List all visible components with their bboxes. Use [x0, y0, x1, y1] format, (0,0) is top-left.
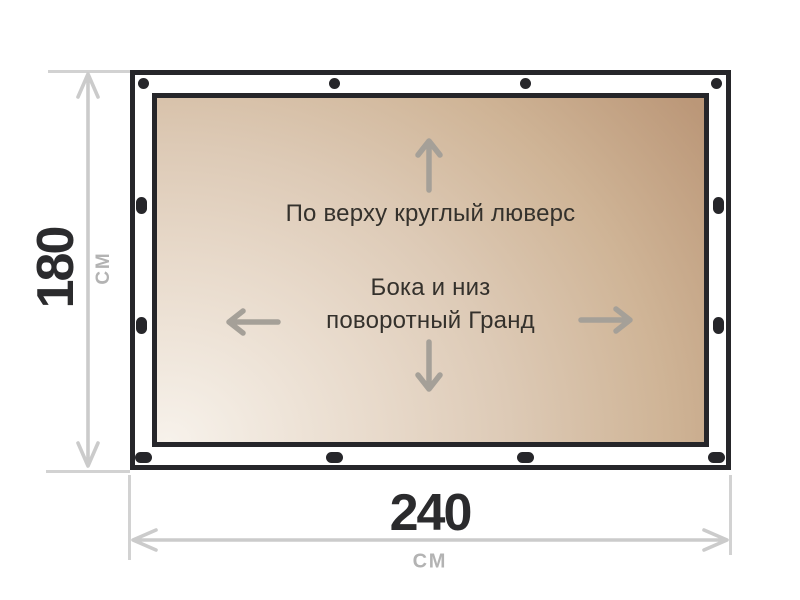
- grommet-swivel-icon: [135, 452, 152, 463]
- banner-size-diagram: По верху круглый люверс Бока и низ повор…: [0, 0, 800, 600]
- grommet-round-icon: [138, 78, 149, 89]
- height-unit: СМ: [93, 251, 115, 284]
- banner-frame: [130, 70, 731, 470]
- grommet-swivel-icon: [708, 452, 725, 463]
- arrow-down-icon: [413, 339, 445, 394]
- width-unit: СМ: [413, 551, 448, 574]
- width-value: 240: [390, 483, 471, 543]
- side-grommet-note: Бока и низ поворотный Гранд: [130, 271, 731, 337]
- grommet-round-icon: [520, 78, 531, 89]
- grommet-round-icon: [329, 78, 340, 89]
- top-grommet-note: По верху круглый люверс: [130, 197, 731, 230]
- grommet-round-icon: [711, 78, 722, 89]
- side-grommet-note-line2: поворотный Гранд: [130, 304, 731, 337]
- arrow-up-icon: [413, 135, 445, 193]
- height-value: 180: [26, 228, 86, 309]
- grommet-swivel-icon: [517, 452, 534, 463]
- side-grommet-note-line1: Бока и низ: [130, 271, 731, 304]
- grommet-swivel-icon: [326, 452, 343, 463]
- extension-line: [46, 470, 130, 473]
